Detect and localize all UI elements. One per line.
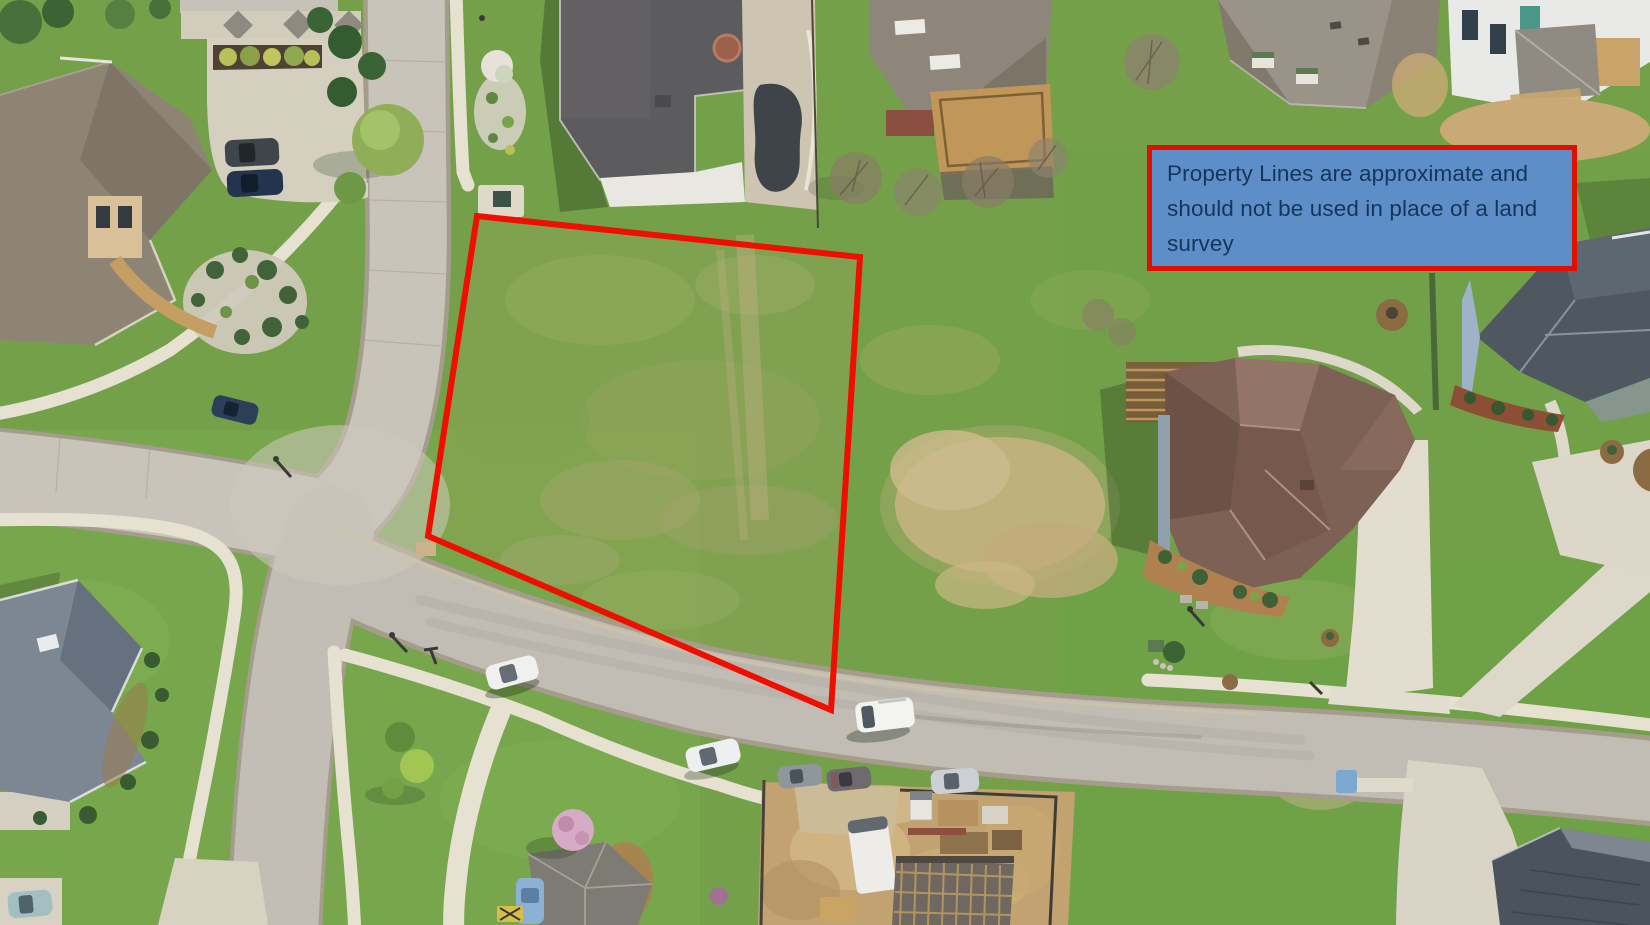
fir-tree	[328, 25, 362, 59]
rock-bed	[474, 74, 526, 150]
small-tree	[1163, 641, 1185, 663]
pink-flowering-tree	[552, 809, 594, 851]
curb-ramp	[416, 542, 436, 556]
house-under-construction	[892, 856, 1014, 925]
parked-car-dark	[826, 766, 872, 792]
annotation-box: Property Lines are approximate and shoul…	[1147, 145, 1577, 271]
utility-box	[493, 191, 511, 207]
tree	[334, 172, 366, 204]
hedge-line	[1432, 273, 1436, 410]
material-pallet	[992, 830, 1022, 850]
lumber-stack	[940, 832, 988, 854]
bush	[385, 722, 415, 752]
sidewalk-stub	[1355, 778, 1413, 792]
utility-box	[1148, 640, 1164, 652]
fire-pit	[714, 35, 740, 61]
fir-tree	[327, 77, 357, 107]
pool	[754, 84, 802, 192]
parked-car-gray	[777, 763, 823, 789]
house-top-center	[540, 0, 818, 228]
annotation-text: Property Lines are approximate and shoul…	[1167, 156, 1560, 261]
aerial-scene	[0, 0, 1650, 925]
fir-tree	[358, 52, 386, 80]
fir-tree	[307, 7, 333, 33]
suv-driveway	[224, 138, 279, 168]
car-driveway	[226, 169, 283, 198]
house-wall	[1158, 415, 1170, 565]
tree	[0, 0, 42, 44]
beam	[908, 828, 966, 835]
driveway-bottomleft	[158, 858, 268, 925]
aerial-photo: Property Lines are approximate and shoul…	[0, 0, 1650, 925]
equipment	[820, 897, 855, 922]
material-pallet	[982, 806, 1008, 824]
bush	[382, 777, 404, 799]
yellow-equipment	[497, 906, 523, 922]
trash-bin	[1336, 770, 1357, 793]
purple-bush	[710, 887, 728, 905]
car-corner-teal	[7, 889, 53, 919]
brick-wall	[886, 110, 934, 136]
porta-potty-roof	[910, 792, 932, 800]
bush	[400, 749, 434, 783]
parked-car-silver	[930, 767, 980, 794]
tree	[105, 0, 135, 29]
lumber-stack	[938, 800, 978, 826]
construction-site	[758, 780, 1075, 925]
